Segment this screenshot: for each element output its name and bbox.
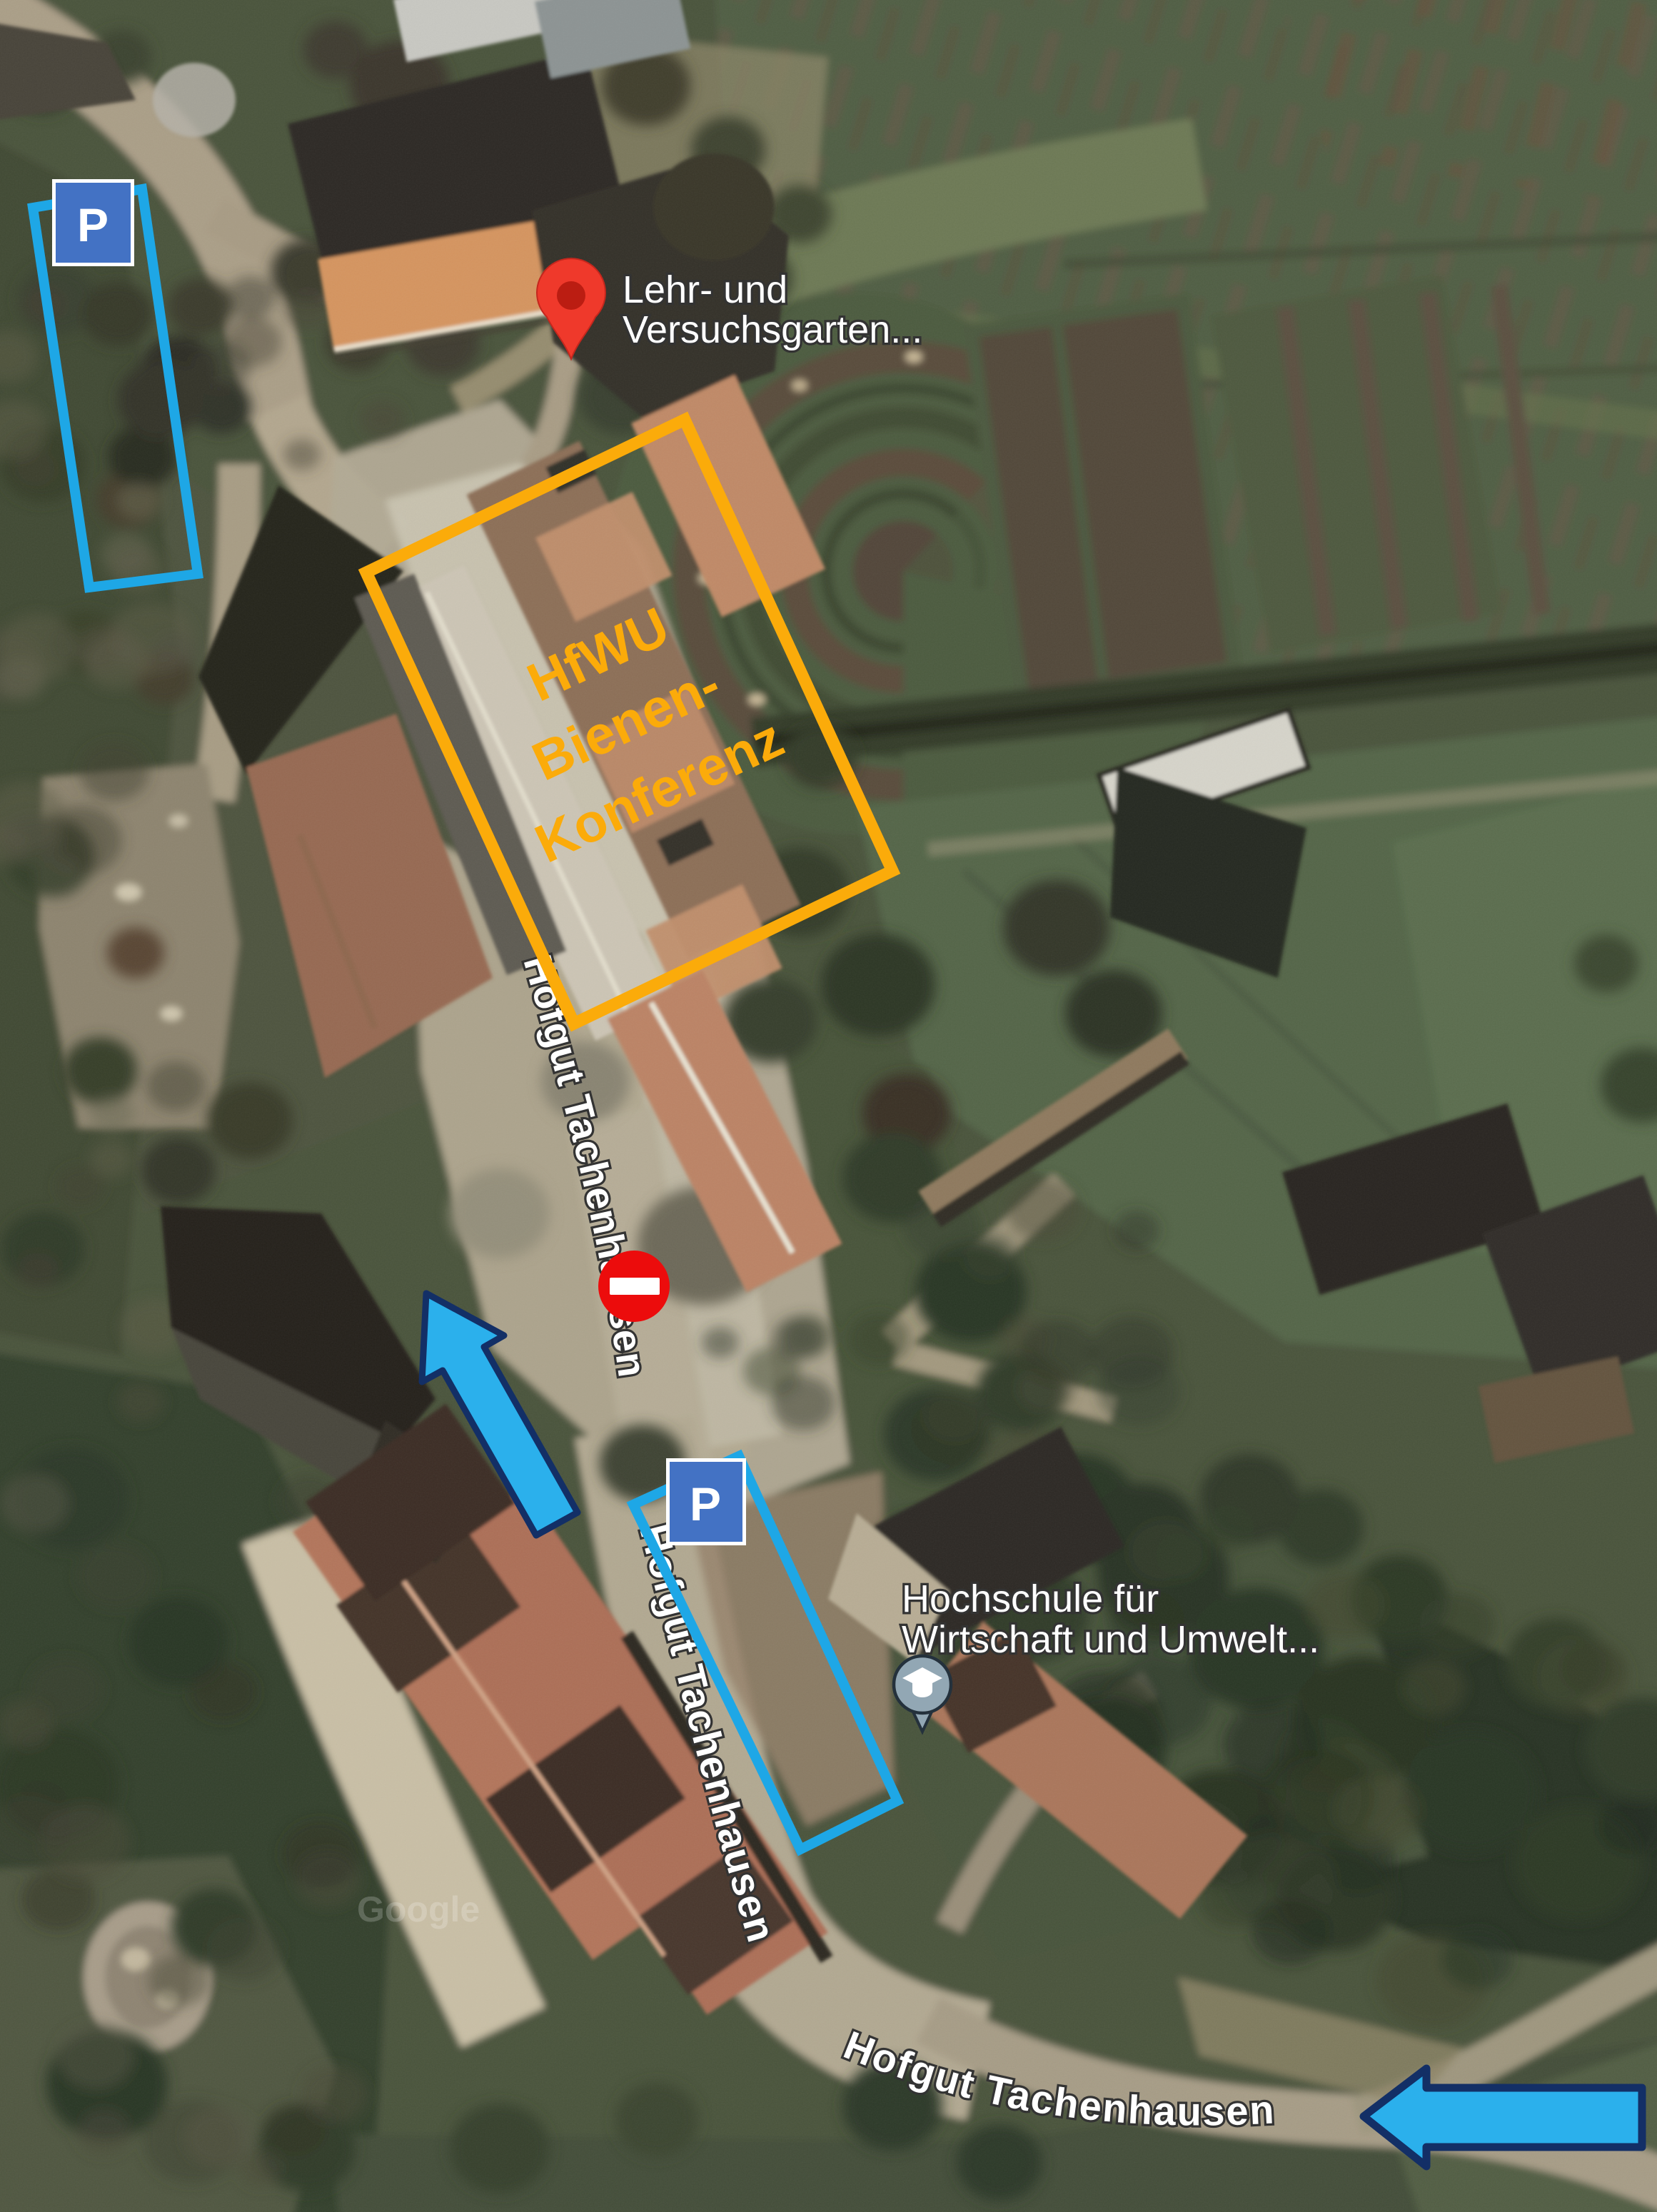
svg-text:Wirtschaft und Umwelt...: Wirtschaft und Umwelt... — [902, 1618, 1319, 1661]
svg-text:P: P — [690, 1478, 721, 1530]
svg-text:Google: Google — [357, 1889, 480, 1929]
svg-text:Versuchsgarten...: Versuchsgarten... — [623, 308, 922, 351]
svg-text:P: P — [77, 198, 109, 251]
svg-text:Hochschule für: Hochschule für — [902, 1577, 1159, 1620]
svg-text:Lehr- und: Lehr- und — [623, 268, 787, 311]
